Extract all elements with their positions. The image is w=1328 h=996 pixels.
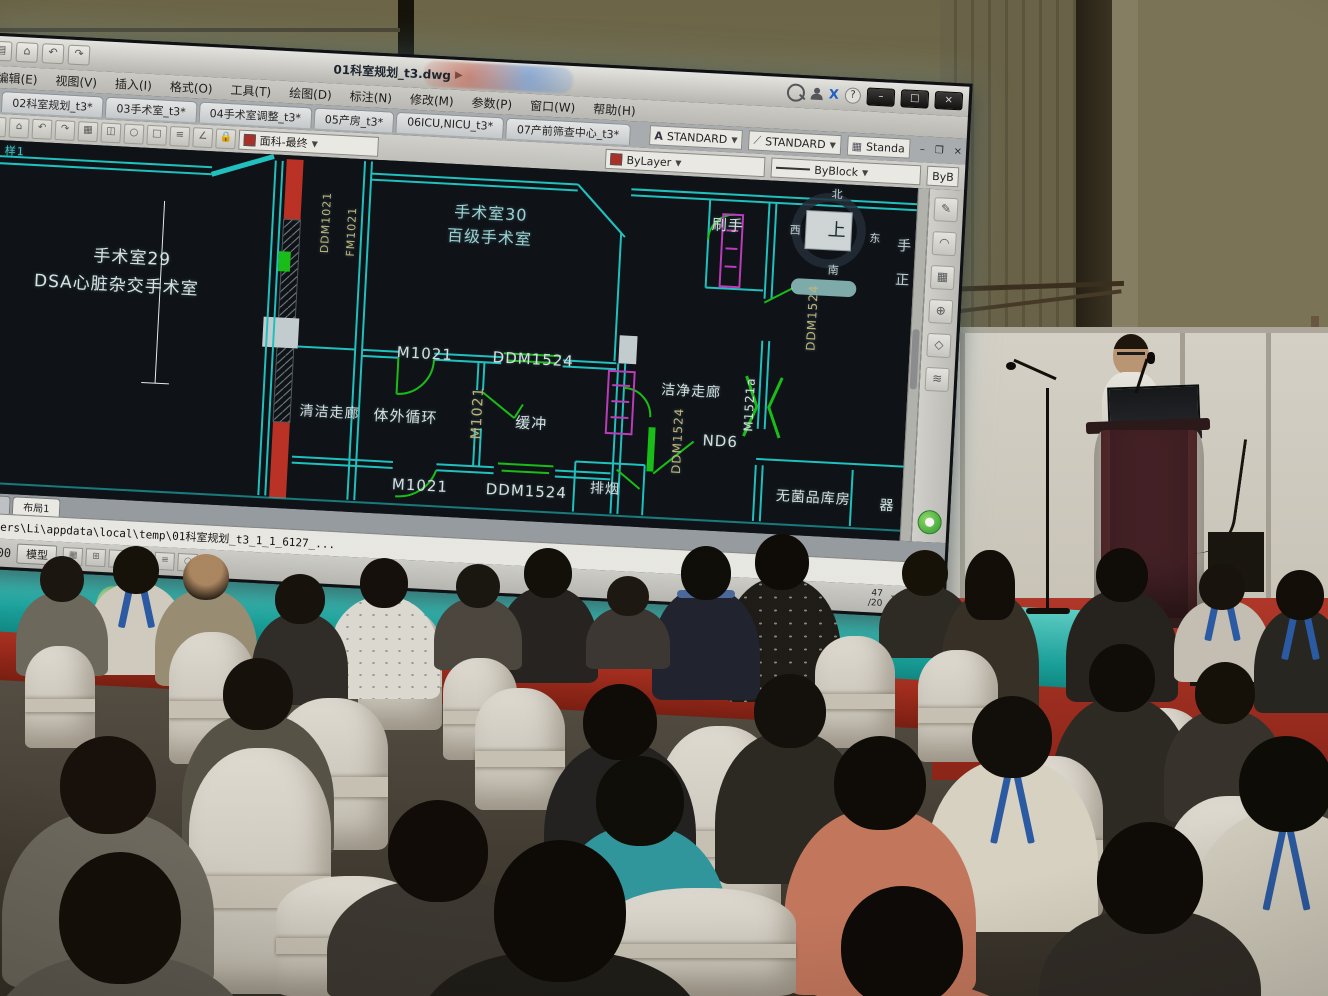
- stand-microphone-icon: [1006, 362, 1016, 370]
- toolbar-icon[interactable]: □: [146, 125, 167, 146]
- menu-item[interactable]: 标注(N): [349, 87, 392, 106]
- mic-stand-pole: [1046, 388, 1049, 612]
- person-head: [841, 886, 963, 996]
- lineweight-combo[interactable]: ByB: [927, 166, 960, 188]
- menu-item[interactable]: 修改(M): [410, 90, 455, 109]
- audience-member: [419, 840, 701, 996]
- person-head: [965, 550, 1015, 620]
- coordinates-readout: 0.0000: [0, 544, 11, 560]
- cad-label: 西: [789, 222, 802, 239]
- text-style-combo[interactable]: A STANDARD▼: [649, 125, 743, 150]
- menu-item[interactable]: 参数(P): [471, 93, 512, 112]
- side-toolbar-icon[interactable]: ▦: [930, 265, 955, 290]
- person-head: [755, 534, 809, 590]
- cad-label: 正: [895, 269, 911, 290]
- person-head: [596, 756, 684, 846]
- person-head: [1097, 822, 1203, 934]
- person-head: [1089, 644, 1155, 712]
- menu-item[interactable]: 格式(O): [169, 77, 213, 96]
- doc-tab[interactable]: 06ICU,NICU_t3*: [396, 111, 505, 138]
- cad-label: FM1021: [344, 206, 360, 256]
- cad-label: 南: [827, 262, 840, 279]
- person-head: [40, 556, 84, 602]
- communication-center-icon[interactable]: ●: [917, 510, 942, 535]
- cad-label: 上: [827, 216, 847, 243]
- audience-member: [0, 852, 251, 996]
- toolbar-icon[interactable]: ◫: [100, 122, 121, 143]
- person-head: [972, 696, 1052, 778]
- tab-model[interactable]: 模型: [0, 494, 11, 514]
- person-head: [607, 576, 649, 616]
- presenter-glasses: [1117, 352, 1145, 355]
- side-toolbar-icon[interactable]: ⊕: [928, 299, 953, 324]
- ceiling-beam: [398, 0, 414, 58]
- audience-member: [771, 886, 1033, 996]
- search-icon[interactable]: [786, 83, 805, 102]
- cad-label: 体外循环: [373, 404, 438, 428]
- side-toolbar-icon[interactable]: ✎: [933, 197, 958, 222]
- menu-item[interactable]: 插入(I): [115, 75, 153, 94]
- toolbar-icon[interactable]: ▭: [0, 116, 7, 137]
- side-toolbar-icon[interactable]: ◇: [926, 333, 951, 358]
- person-head: [1276, 570, 1324, 620]
- audience-member: [586, 576, 670, 670]
- cad-label: 百级手术室: [446, 222, 532, 250]
- chair-cover: [25, 646, 95, 748]
- drawing-canvas[interactable]: 样1手术室29DSA心脏杂交手术室手术室30百级手术室DDM1021FM1021…: [0, 139, 918, 541]
- layer-color-swatch: [243, 134, 256, 147]
- undo-button[interactable]: ↶: [41, 43, 64, 64]
- person-head: [223, 658, 293, 730]
- color-swatch: [610, 153, 623, 166]
- help-icon[interactable]: ?: [844, 87, 861, 104]
- cad-label: 东: [869, 230, 882, 247]
- person-head: [360, 558, 408, 608]
- doc-tab[interactable]: 07产前筛查中心_t3*: [505, 117, 630, 144]
- signin-user-icon[interactable]: [811, 87, 824, 100]
- cad-label: 无菌品库房: [775, 485, 851, 509]
- side-toolbar-icon[interactable]: ◠: [932, 231, 957, 256]
- dim-style-combo[interactable]: ⟋ STANDARD▼: [748, 130, 841, 155]
- toolbar-icon[interactable]: ▦: [77, 121, 98, 142]
- cad-label: 排烟: [589, 477, 620, 499]
- light-pillar: [1112, 0, 1138, 348]
- doc-close-icon[interactable]: ×: [953, 146, 962, 157]
- person-head: [456, 564, 500, 608]
- person-head: [524, 548, 572, 598]
- toolbar-icon[interactable]: ≡: [169, 126, 190, 147]
- person-head: [1199, 564, 1245, 610]
- cad-label: 手: [897, 235, 913, 256]
- side-toolbar-icon[interactable]: ≋: [925, 367, 950, 392]
- person-head: [1195, 662, 1255, 724]
- toolbar-icon[interactable]: ○: [123, 124, 144, 145]
- cad-label: 清洁走廊: [299, 400, 360, 423]
- cad-label: ND6: [702, 431, 738, 451]
- cad-label: 手术室29: [93, 241, 172, 270]
- chair-sash: [25, 699, 95, 712]
- menu-item[interactable]: 绘图(D): [289, 84, 332, 103]
- minimize-button[interactable]: –: [866, 87, 895, 106]
- cad-label: 器: [879, 495, 895, 516]
- person-head: [494, 840, 626, 982]
- menu-item[interactable]: 视图(V): [55, 71, 97, 90]
- audience-member: [1039, 822, 1261, 996]
- app-menu-button[interactable]: ▤: [0, 40, 13, 61]
- doc-tab[interactable]: 02科室规划_t3*: [1, 91, 104, 117]
- menu-item[interactable]: 帮助(H): [593, 100, 636, 119]
- person-head: [681, 546, 731, 600]
- person-head: [1096, 548, 1148, 602]
- conference-photo: ▤ ⌂ ↶ ↷ 01科室规划_t3.dwg ▶ X ? – □ × 编辑(E)视…: [0, 0, 1328, 996]
- exchange-icon[interactable]: X: [828, 87, 839, 103]
- cad-label: M1021: [391, 475, 448, 496]
- layer-lock-icon[interactable]: 🔒: [215, 128, 236, 149]
- doc-restore-icon[interactable]: ❐: [934, 145, 944, 156]
- person-head: [59, 852, 181, 984]
- redo-button[interactable]: ↷: [67, 45, 90, 66]
- doc-minimize-icon[interactable]: –: [920, 144, 926, 155]
- person-head: [834, 736, 926, 830]
- table-style-combo[interactable]: ▦ Standa: [846, 135, 910, 158]
- right-wall: [1138, 0, 1328, 348]
- toolbar-icon[interactable]: ↶: [31, 119, 52, 140]
- cad-label: 北: [831, 186, 844, 203]
- cad-label: 缓冲: [515, 411, 548, 434]
- menu-item[interactable]: 工具(T): [230, 81, 272, 100]
- doc-tab[interactable]: 05产房_t3*: [313, 107, 394, 132]
- menu-item[interactable]: 编辑(E): [0, 68, 38, 87]
- cad-label: 样1: [4, 142, 25, 159]
- wall-seam: [0, 28, 400, 32]
- cad-label: 洁净走廊: [661, 379, 722, 402]
- toolbar-icon[interactable]: ∠: [192, 127, 213, 148]
- audience-member: [434, 564, 522, 671]
- cad-label: M1021: [468, 386, 487, 439]
- person-head: [583, 684, 657, 760]
- podium-microphone: [1147, 352, 1155, 364]
- person-head: [183, 554, 229, 600]
- open-button[interactable]: ⌂: [15, 42, 38, 63]
- doc-tab[interactable]: 03手术室_t3*: [105, 96, 197, 122]
- doc-tab[interactable]: 04手术室调整_t3*: [198, 101, 312, 128]
- person-torso: [586, 607, 670, 669]
- close-button[interactable]: ×: [934, 91, 963, 110]
- toolbar-icon[interactable]: ⌂: [9, 118, 30, 139]
- person-head: [113, 546, 159, 594]
- cad-label: M1521a: [741, 377, 758, 432]
- person-head: [275, 574, 325, 624]
- toolbar-icon[interactable]: ↷: [54, 120, 75, 141]
- menu-item[interactable]: 窗口(W): [530, 96, 576, 115]
- led-screen-autocad-window: ▤ ⌂ ↶ ↷ 01科室规划_t3.dwg ▶ X ? – □ × 编辑(E)视…: [0, 32, 973, 619]
- cad-label: M1021: [396, 343, 453, 364]
- restore-button[interactable]: □: [900, 89, 929, 108]
- person-head: [1239, 736, 1328, 832]
- person-head: [60, 736, 156, 834]
- cad-label: 刷手: [711, 213, 744, 236]
- linetype-sample: [776, 167, 810, 171]
